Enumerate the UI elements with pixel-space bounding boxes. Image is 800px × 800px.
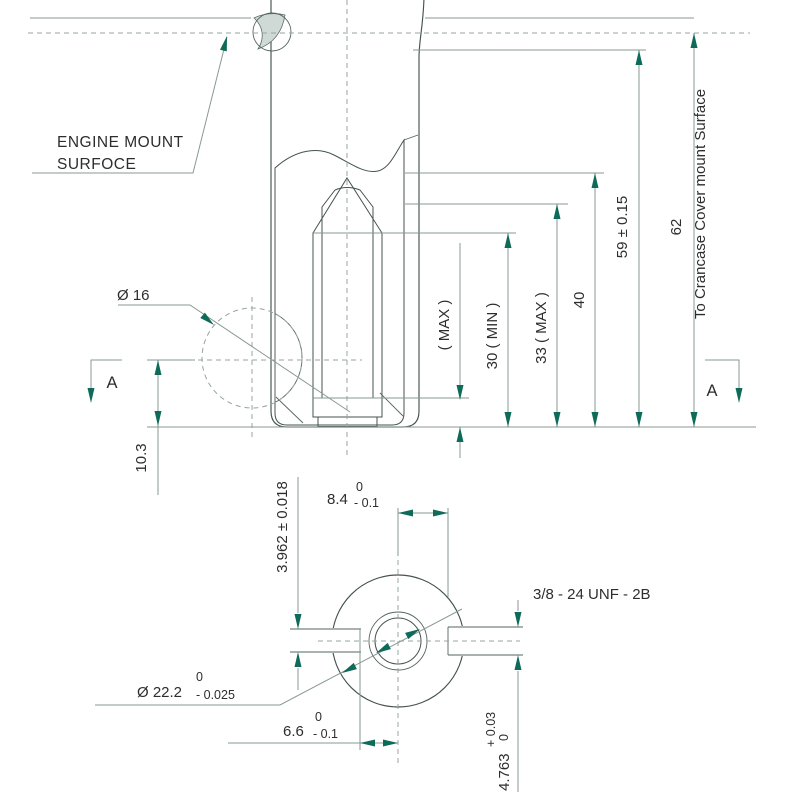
thread-spec-label: 3/8 - 24 UNF - 2B	[533, 586, 651, 603]
section-marker-a-right: A	[706, 382, 717, 400]
dim-10-3-label: 10.3	[133, 443, 150, 472]
dim-6-6-tol-upper: 0	[315, 710, 322, 724]
dim-8-4-label: 8.4	[327, 491, 348, 508]
dim-max-label: ( MAX )	[436, 300, 453, 351]
dim-8-4-tol-upper: 0	[356, 480, 363, 494]
slot-cut-right	[447, 626, 525, 656]
dia22-2-tol-upper: 0	[196, 670, 203, 684]
dim-59-label: 59 ± 0.15	[614, 196, 631, 258]
dim-4-763-tol-lower: 0	[497, 734, 511, 741]
dim-62-label: 62	[668, 219, 685, 236]
crankcase-note-label: To Crancase Cover mount Surface	[692, 89, 709, 319]
dim-4-763-tol-upper: + 0.03	[484, 712, 498, 747]
section-marker-a-left: A	[106, 374, 117, 392]
dim-33-max-label: 33 ( MAX )	[533, 292, 550, 364]
engine-mount-label-line2: SURFOCE	[57, 156, 136, 173]
dia22-2-tol-lower: - 0.025	[196, 688, 235, 702]
engine-mount-label-line1: ENGINE MOUNT	[57, 134, 184, 151]
dia16-label: Ø 16	[117, 287, 150, 304]
dim-3-962-label: 3.962 ± 0.018	[274, 481, 291, 573]
dim-30-min-label: 30 ( MIN )	[484, 303, 501, 370]
drawing-svg: ENGINE MOUNT SURFOCE Ø 16 A A 10.3 ( MAX…	[0, 0, 800, 800]
engineering-drawing: ENGINE MOUNT SURFOCE Ø 16 A A 10.3 ( MAX…	[0, 0, 800, 800]
dia22-2-label: Ø 22.2	[137, 684, 182, 701]
background	[0, 0, 800, 800]
dim-4-763-label: 4.763	[496, 753, 513, 791]
dim-8-4-tol-lower: - 0.1	[354, 496, 379, 510]
dim-6-6-label: 6.6	[283, 723, 304, 740]
dim-6-6-tol-lower: - 0.1	[313, 727, 338, 741]
dim-40-label: 40	[571, 292, 588, 309]
